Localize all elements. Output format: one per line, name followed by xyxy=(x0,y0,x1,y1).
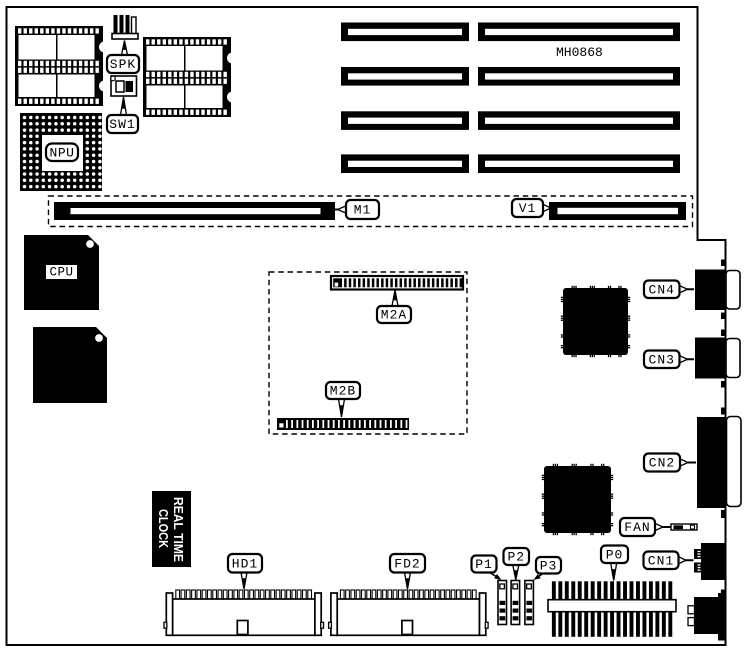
svg-text:REAL TIME: REAL TIME xyxy=(171,497,186,562)
svg-text:CN3: CN3 xyxy=(649,352,675,367)
svg-text:NPU: NPU xyxy=(50,146,75,161)
svg-text:CN2: CN2 xyxy=(649,456,675,471)
svg-text:M2A: M2A xyxy=(381,308,407,323)
svg-text:MH0868: MH0868 xyxy=(556,45,603,60)
svg-text:SPK: SPK xyxy=(110,57,136,72)
svg-text:FD2: FD2 xyxy=(394,556,420,571)
svg-text:M2B: M2B xyxy=(330,384,356,399)
svg-text:CN4: CN4 xyxy=(649,282,675,297)
svg-text:CLOCK: CLOCK xyxy=(156,509,171,549)
svg-text:CPU: CPU xyxy=(49,266,73,280)
svg-text:CN1: CN1 xyxy=(648,553,674,568)
svg-text:HD1: HD1 xyxy=(232,556,258,571)
svg-text:V1: V1 xyxy=(519,201,537,216)
svg-text:M1: M1 xyxy=(354,203,372,218)
svg-text:P3: P3 xyxy=(540,558,558,573)
svg-text:P0: P0 xyxy=(606,547,624,562)
svg-text:FAN: FAN xyxy=(624,520,650,535)
svg-text:P2: P2 xyxy=(507,550,525,565)
svg-text:P1: P1 xyxy=(475,557,493,572)
svg-text:SW1: SW1 xyxy=(109,117,135,132)
